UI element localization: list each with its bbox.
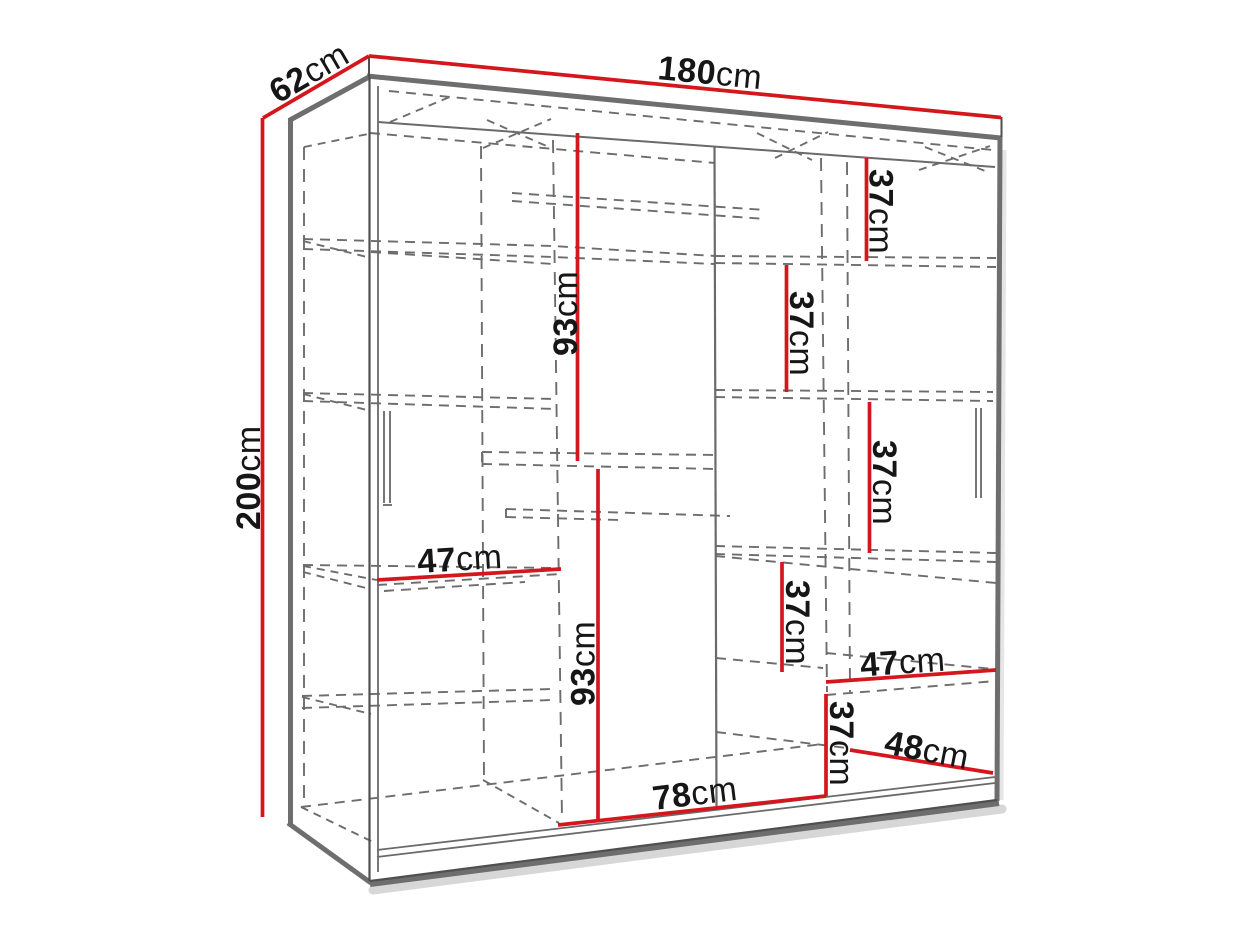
svg-text:47cm: 47cm — [859, 641, 947, 685]
svg-text:47cm: 47cm — [416, 538, 503, 581]
svg-text:37cm: 37cm — [862, 169, 900, 254]
svg-text:93cm: 93cm — [565, 621, 603, 706]
svg-text:37cm: 37cm — [822, 701, 860, 786]
svg-text:93cm: 93cm — [547, 271, 585, 356]
svg-text:37cm: 37cm — [865, 440, 903, 525]
svg-text:37cm: 37cm — [782, 291, 820, 376]
svg-text:200cm: 200cm — [230, 425, 268, 530]
svg-text:37cm: 37cm — [778, 580, 816, 665]
